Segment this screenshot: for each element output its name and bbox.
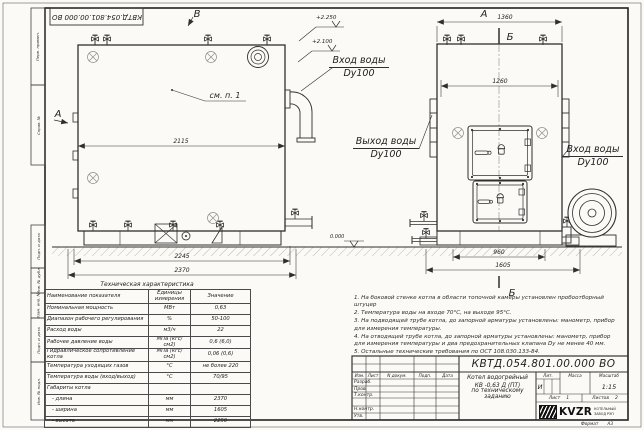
tb-hdr-list: Лист [366, 373, 380, 379]
tb-scale-value: 1:15 [590, 379, 628, 394]
table-row: Габариты котла [45, 383, 251, 394]
elev-2100: +2.100 [312, 39, 333, 45]
tb-lit-value: И [536, 379, 544, 394]
fan-blower [562, 189, 616, 246]
label-water-outlet: Выход воды Dy100 [350, 136, 422, 161]
callout-see-p1: см. п. 1 [210, 91, 241, 100]
table-row: Температура воды (вход/выход)°С70/95 [45, 372, 251, 383]
tb-role-nkontr: Н.контр. [354, 406, 380, 413]
frame-col-podp-data-1: Подп. и дата [31, 225, 45, 268]
dim-2370: 2370 [174, 267, 189, 274]
tb-hdr-podp: Подп. [414, 373, 436, 379]
tb-role-utv: Утв. [354, 413, 380, 420]
note-1: 1. На боковой стенке котла в области топ… [354, 295, 620, 310]
tb-sheet: Лист 1 [536, 394, 582, 402]
kvzr-logo-text: KVZR [559, 406, 592, 418]
label-water-inlet-front: Вход воды Dy100 [560, 144, 626, 169]
view-letter-a-side: А [54, 109, 62, 120]
table-row: Диапазон рабочего регулирования%50-100 [45, 315, 251, 326]
ground-line [52, 247, 622, 256]
boiler-side-view [73, 35, 315, 245]
product-title-line3: по техническому заданию [459, 389, 536, 398]
view-letter-a-front: А [480, 9, 488, 20]
note-2: 2. Температура воды на входе 70°С, на вы… [354, 310, 620, 317]
table-row: Гидравлическое сопротивление котлаМПа (к… [45, 349, 251, 361]
note-4: 4. На отводящей трубе котла, до запорной… [354, 334, 620, 349]
tech-table-title: Техническая характеристика [44, 281, 250, 288]
frame-col-sprav-no: Справ. № [31, 85, 45, 165]
tb-mass-label: Масса [560, 373, 590, 379]
elev-0000: 0.000 [330, 234, 344, 240]
dim-1260: 1260 [492, 78, 507, 85]
frame-col-inv-dubl: Инв. № дубл. [31, 268, 45, 293]
doc-number: КВТД.054.801.00.000 ВО [460, 356, 627, 372]
elev-2250: +2.250 [316, 15, 337, 21]
table-row: - длинамм2370 [45, 394, 251, 405]
tb-hdr-izm: Изм. [353, 373, 366, 379]
tech-table: Наименование показателя Единицы измерени… [44, 289, 251, 428]
technical-notes: 1. На боковой стенке котла в области топ… [354, 295, 620, 357]
tb-sheets: Листов 2 [582, 394, 628, 402]
note-3: 3. На подводящей трубе котла, до запорно… [354, 318, 620, 333]
label-water-inlet-side: Вход воды Dy100 [328, 55, 390, 80]
dim-1605: 1605 [495, 262, 510, 269]
doc-number-stamp-text: КВТД.054.801.00.000 ВО [52, 13, 142, 21]
tb-role-tkontr: Т.контр. [354, 392, 380, 398]
kvzr-logo: KVZR КОТЕЛЬНЫЙ ЗАВОД РЭП [539, 404, 626, 419]
frame-col-perv-primen: Перв. примен. [31, 8, 45, 85]
dim-960: 960 [493, 249, 505, 256]
tb-scale-label: Масштаб [590, 373, 628, 379]
section-letter-b-top: Б [507, 32, 514, 43]
tb-role-razrab: Разраб. [354, 379, 380, 386]
tech-table-header: Наименование показателя Единицы измерени… [45, 290, 251, 304]
table-row: - высотамм2250 [45, 416, 251, 427]
view-letter-b: В [194, 9, 201, 20]
table-row: Температура уходящих газов°Сне более 220 [45, 361, 251, 372]
table-row: - ширинамм1605 [45, 405, 251, 416]
table-row: Расход водым3/ч22 [45, 326, 251, 337]
dim-2245: 2245 [174, 253, 189, 260]
table-row: Номинальная мощностьМВт0,63 [45, 304, 251, 315]
tb-lit-label: Лит. [536, 373, 560, 379]
frame-col-podp-data-2: Подп. и дата [31, 318, 45, 362]
doc-number-stamp-rotated: КВТД.054.801.00.000 ВО [50, 8, 143, 25]
kvzr-logo-mark-icon [539, 405, 557, 419]
tb-hdr-ndokum: N докум. [380, 373, 414, 379]
format-note: Формат А3 [566, 420, 628, 428]
frame-col-inv-podl: Инв. № подл. [31, 362, 45, 420]
drawing-sheet: В А см. п. 1 +2.250 +2.100 2115 2245 237… [0, 0, 644, 430]
dim-1360: 1360 [497, 14, 512, 21]
frame-col-vzam-inv: Взам. инв. № [31, 293, 45, 318]
kvzr-logo-subtitle: КОТЕЛЬНЫЙ ЗАВОД РЭП [594, 407, 616, 415]
dim-2115: 2115 [173, 138, 188, 145]
tb-hdr-data: Дата [436, 373, 459, 379]
table-row: Рабочее давление водыМПа (кгс/см2)0,6 (6… [45, 337, 251, 349]
side-view-dimensions [54, 17, 344, 279]
